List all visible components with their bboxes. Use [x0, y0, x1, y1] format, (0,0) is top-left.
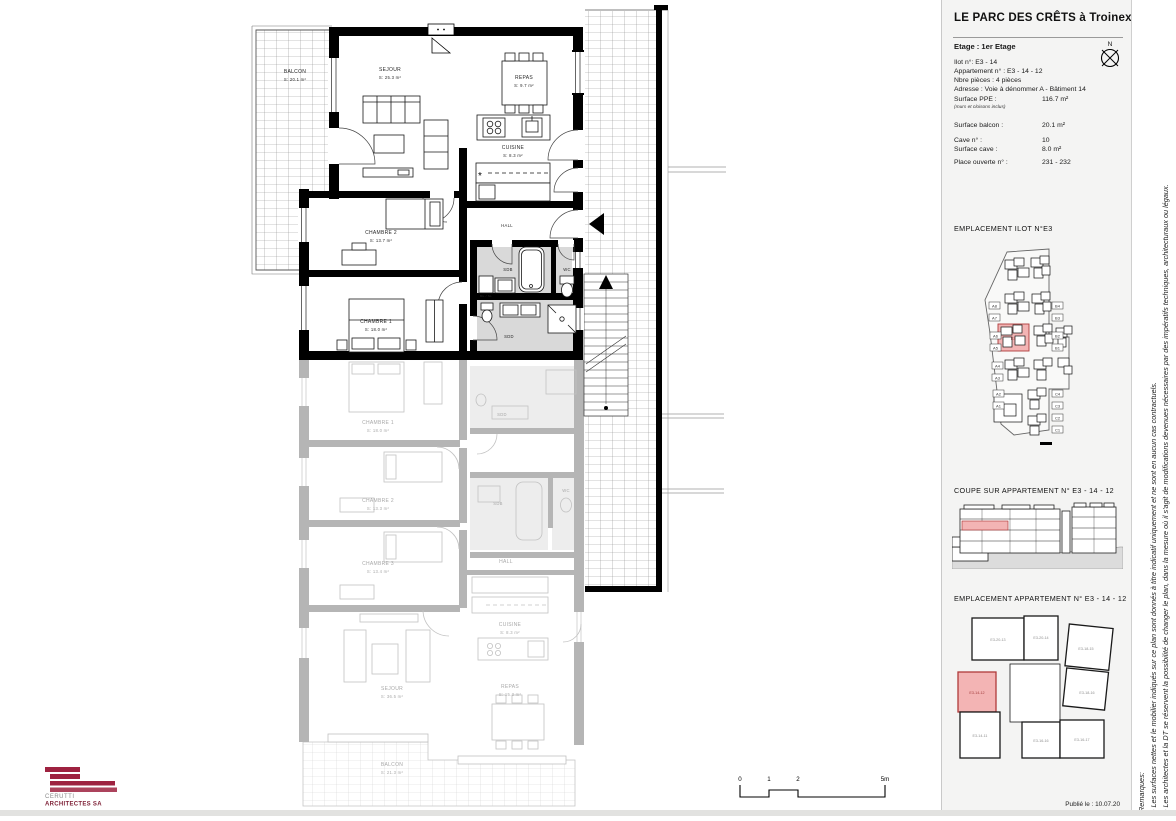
- svg-text:S: 9.7 m²: S: 9.7 m²: [514, 83, 534, 88]
- sheet-edge: [0, 810, 1176, 816]
- sejour-label: SEJOUR: [379, 67, 401, 73]
- site-scale-tick: [1040, 442, 1052, 445]
- faded-sejour-label: SEJOUR: [381, 686, 403, 692]
- svg-text:B4: B4: [1055, 304, 1061, 309]
- chimney: [428, 24, 454, 53]
- pieces-line: Nbre pièces : 4 pièces: [954, 76, 1104, 85]
- svg-text:S: 25.3 m²: S: 25.3 m²: [379, 75, 402, 80]
- svg-text:A5: A5: [993, 346, 999, 351]
- repas-label: REPAS: [515, 75, 533, 81]
- ilot-line: Ilot n°: E3 - 14: [954, 58, 1104, 67]
- terrace-strip: [584, 5, 726, 592]
- faded-sdd-label: SDD: [497, 412, 507, 417]
- svg-text:2: 2: [796, 776, 800, 783]
- highlighted-apartment-label: E3-14-12: [969, 691, 984, 695]
- highlighted-floor: [962, 521, 1008, 530]
- cuisine-label: CUISINE: [502, 145, 525, 151]
- svg-text:S: 18.0 m²: S: 18.0 m²: [367, 428, 390, 433]
- faded-hall-label: HALL: [499, 559, 513, 565]
- svg-text:N: N: [1108, 41, 1113, 48]
- svg-text:A7: A7: [992, 316, 998, 321]
- apartment-locator: E3-20-13 E3-20-14 E3-18-15 E3-18-16 E3-1…: [952, 606, 1123, 764]
- project-title: LE PARC DES CRÊTS à Troinex: [954, 12, 1132, 24]
- logo-line1: CERUTTI: [45, 794, 75, 800]
- svg-text:S: 8.3 m²: S: 8.3 m²: [500, 630, 520, 635]
- svg-text:E3-16-16: E3-16-16: [1033, 739, 1048, 743]
- faded-chambre3-label: CHAMBRE 3: [362, 561, 394, 567]
- remarks-line2: - Les architectes et la DT se réservent …: [1160, 6, 1172, 812]
- svg-text:S: 8.3 m²: S: 8.3 m²: [503, 153, 523, 158]
- site-labels-c: C4 C3 C2 C1: [1052, 390, 1063, 433]
- remarks-line1: - Les surfaces nettes et le mobilier ind…: [1148, 6, 1160, 812]
- svg-text:B3: B3: [1055, 316, 1061, 321]
- staircase: [584, 274, 628, 416]
- section-drawing: [952, 497, 1123, 569]
- svg-text:E3-16-17: E3-16-17: [1074, 738, 1089, 742]
- svg-text:A3: A3: [995, 376, 1001, 381]
- svg-text:S: 13.4 m²: S: 13.4 m²: [367, 569, 390, 574]
- faded-balcon-label: BALCON: [381, 762, 403, 768]
- svg-text:S: 20.1 m²: S: 20.1 m²: [284, 77, 307, 82]
- faded-repas-label: REPAS: [501, 684, 519, 690]
- floor-label: Etage : 1er Etage: [954, 42, 1016, 51]
- info-panel: LE PARC DES CRÊTS à Troinex Etage : 1er …: [941, 0, 1132, 816]
- svg-text:C4: C4: [1055, 392, 1061, 397]
- svg-text:A6: A6: [993, 334, 999, 339]
- svg-text:5m: 5m: [881, 776, 890, 783]
- section-heading: COUPE SUR APPARTEMENT N° E3 - 14 - 12: [954, 486, 1114, 495]
- faded-chambre2-label: CHAMBRE 2: [362, 498, 394, 504]
- apartment-e3-14-12: * BALCON S: 20.1 m² SEJOUR S: 25.3 m² RE…: [252, 24, 584, 360]
- logo-line2: ARCHITECTES SA: [45, 802, 102, 808]
- sdd-label: SDD: [504, 334, 514, 339]
- faded-apartment-below: CHAMBRE 1 S: 18.0 m² CHAMBRE 2 S: 13.3 m…: [298, 360, 585, 806]
- ppe-note: (murs et cloisons inclus): [954, 105, 1005, 110]
- site-plan: A8 A7 A6 A5 A4 A3 A2 A1 B4 B3 B2 B1: [952, 238, 1123, 466]
- site-plan-heading: EMPLACEMENT ILOT N°E3: [954, 224, 1053, 233]
- apartment-info: Ilot n°: E3 - 14 Appartement n° : E3 - 1…: [954, 58, 1104, 94]
- balcon-label: BALCON: [284, 69, 306, 75]
- building-cluster: [1031, 256, 1050, 278]
- building-cluster: [1034, 324, 1053, 346]
- svg-text:0: 0: [738, 776, 742, 783]
- svg-text:1: 1: [767, 776, 771, 783]
- scale-bar: 0 1 2 5m: [738, 776, 889, 797]
- building-cluster: [1032, 292, 1051, 314]
- svg-text:B1: B1: [1055, 346, 1061, 351]
- faded-sdb-label: SDB: [493, 501, 503, 506]
- svg-text:E3-14-11: E3-14-11: [973, 734, 988, 738]
- floor-plan-drawing: CHAMBRE 1 S: 18.0 m² CHAMBRE 2 S: 13.3 m…: [0, 0, 941, 816]
- svg-text:S: 13.3 m²: S: 13.3 m²: [367, 506, 390, 511]
- remarks-strip: Remarques: - Les surfaces nettes et le m…: [1131, 0, 1176, 816]
- svg-text:C2: C2: [1055, 416, 1061, 421]
- remarks-title: Remarques:: [1136, 6, 1148, 812]
- dishwasher-symbol: *: [478, 171, 482, 182]
- svg-text:S: 36.5 m²: S: 36.5 m²: [381, 694, 404, 699]
- svg-text:S: 18.0 m²: S: 18.0 m²: [365, 327, 388, 332]
- e3-highlight-label: E3: [1011, 337, 1015, 341]
- svg-text:A4: A4: [995, 364, 1001, 369]
- faded-cuisine-label: CUISINE: [499, 622, 522, 628]
- svg-text:E3-18-15: E3-18-15: [1078, 647, 1093, 651]
- svg-text:A2: A2: [996, 392, 1002, 397]
- chambre1-label: CHAMBRE 1: [360, 319, 392, 325]
- sdb-label: SDB: [503, 267, 513, 272]
- wc-label: WC: [563, 267, 571, 272]
- room-balcon: [252, 26, 334, 274]
- svg-text:E3-20-13: E3-20-13: [990, 638, 1005, 642]
- svg-text:B2: B2: [1055, 334, 1061, 339]
- svg-text:E3-20-14: E3-20-14: [1033, 636, 1048, 640]
- surface-cave-row: Surface cave :8.0 m²: [954, 146, 1122, 153]
- cave-row: Cave n° :10: [954, 137, 1122, 144]
- chambre2-label: CHAMBRE 2: [365, 230, 397, 236]
- svg-text:S: 15.3 m²: S: 15.3 m²: [499, 692, 522, 697]
- publication-date: Publié le : 10.07.20: [1065, 801, 1120, 808]
- apartment-locator-heading: EMPLACEMENT APPARTEMENT N° E3 - 14 - 12: [954, 594, 1127, 603]
- svg-text:A8: A8: [992, 304, 998, 309]
- svg-text:E3-18-16: E3-18-16: [1079, 691, 1094, 695]
- architect-logo: CERUTTI ARCHITECTES SA: [45, 767, 117, 808]
- svg-text:S: 13.7 m²: S: 13.7 m²: [370, 238, 393, 243]
- svg-text:C1: C1: [1055, 428, 1061, 433]
- surface-balcon-row: Surface balcon :20.1 m²: [954, 122, 1122, 129]
- svg-text:A1: A1: [996, 404, 1002, 409]
- svg-text:C3: C3: [1055, 404, 1061, 409]
- hall-label: HALL: [501, 223, 513, 228]
- ml-sl-label: ML / SL: [480, 294, 492, 298]
- floor-plan-sheet: CHAMBRE 1 S: 18.0 m² CHAMBRE 2 S: 13.3 m…: [0, 0, 941, 816]
- place-ouverte-row: Place ouverte n° :231 - 232: [954, 159, 1122, 166]
- faded-chambre1-label: CHAMBRE 1: [362, 420, 394, 426]
- svg-text:S: 21.3 m²: S: 21.3 m²: [381, 770, 404, 775]
- appartement-line: Appartement n° : E3 - 14 - 12: [954, 67, 1104, 76]
- adresse-line: Adresse : Voie à dénommer A - Bâtiment 1…: [954, 85, 1104, 94]
- faded-wc-label: WC: [562, 488, 570, 493]
- surface-ppe-row: Surface PPE :116.7 m²: [954, 96, 1122, 103]
